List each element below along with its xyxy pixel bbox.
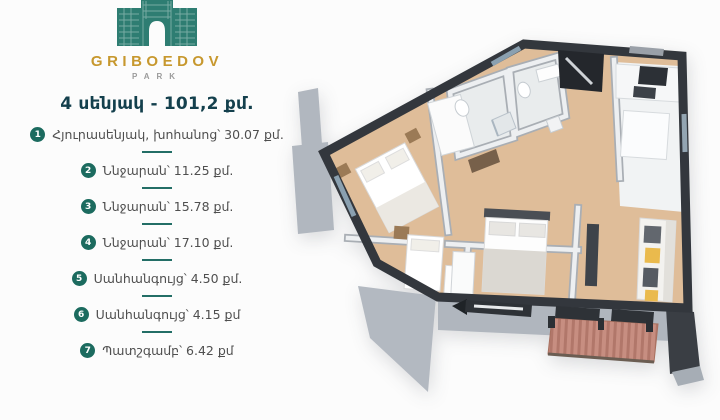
tv-unit [585, 224, 599, 286]
list-item-room-6: 6 Սանհանգույց՝ 4.15 քմ [74, 307, 241, 343]
arch-building-icon [114, 0, 200, 46]
brand-name: GRIBOEDOV [91, 53, 223, 70]
brand-subtitle: PARK [132, 72, 182, 81]
room-3-badge: 3 [81, 199, 96, 214]
list-item-room-7: 7 Պատշգամբ՝ 6.42 քմ [80, 343, 233, 358]
room-7-badge: 7 [80, 343, 95, 358]
list-item-room-2: 2 Ննջարան՝ 11.25 քմ. [81, 163, 234, 199]
room-4-label: Ննջարան՝ 17.10 քմ. [103, 235, 234, 250]
page-title: 4 սենյակ - 101,2 քմ. [60, 94, 254, 114]
room-4-badge: 4 [81, 235, 96, 250]
list-item-room-3: 3 Ննջարան՝ 15.78 քմ. [81, 199, 234, 235]
bedroom-2-wardrobe [451, 251, 475, 294]
room-1-badge: 1 [30, 127, 45, 142]
room-2-badge: 2 [81, 163, 96, 178]
room-6-badge: 6 [74, 307, 89, 322]
room-6-label: Սանհանգույց՝ 4.15 քմ [96, 307, 241, 322]
room-5-label: Սանհանգույց՝ 4.50 քմ. [94, 271, 243, 286]
room-2-label: Ննջարան՝ 11.25 քմ. [103, 163, 234, 178]
room-list: 1 Հյուրասենյակ, խոհանոց՝ 30.07 քմ. 2 Ննջ… [30, 127, 284, 358]
bedroom-4-bed [480, 208, 550, 294]
list-item-room-1: 1 Հյուրասենյակ, խոհանոց՝ 30.07 քմ. [30, 127, 284, 163]
room-1-label: Հյուրասենյակ, խոհանոց՝ 30.07 քմ. [52, 127, 284, 142]
info-panel: GRIBOEDOV PARK 4 սենյակ - 101,2 քմ. 1 Հյ… [12, 0, 302, 358]
list-item-room-5: 5 Սանհանգույց՝ 4.50 քմ. [72, 271, 243, 307]
brand-logo: GRIBOEDOV PARK [91, 0, 223, 81]
sofa [637, 218, 676, 302]
page: GRIBOEDOV PARK 4 սենյակ - 101,2 քմ. 1 Հյ… [0, 0, 720, 420]
entrance-door [558, 50, 604, 92]
room-3-label: Ննջարան՝ 15.78 քմ. [103, 199, 234, 214]
room-7-label: Պատշգամբ՝ 6.42 քմ [102, 343, 233, 358]
list-item-room-4: 4 Ննջարան՝ 17.10 քմ. [81, 235, 234, 271]
room-5-badge: 5 [72, 271, 87, 286]
